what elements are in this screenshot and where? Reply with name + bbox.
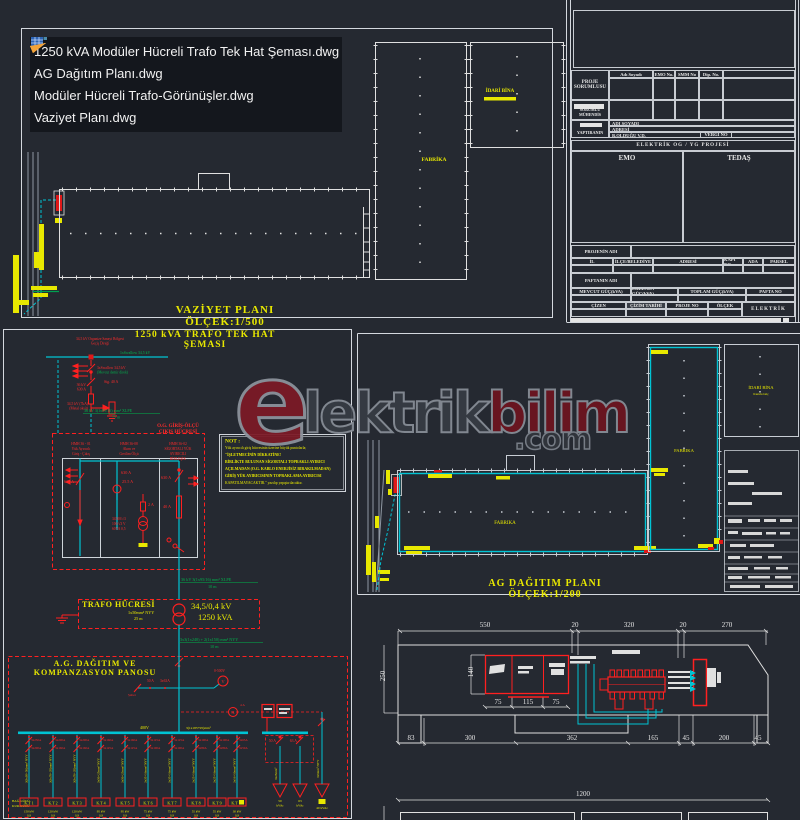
svg-text:630 A: 630 A xyxy=(77,388,86,392)
og-cell-block: O.G. GİRİŞ-ÖLÇÜ ÇIKIŞ HÜCRESİ HMH 36 - 0… xyxy=(53,423,205,570)
fabrika-label: FABRİKA xyxy=(412,158,456,164)
tb-h-empty xyxy=(723,70,795,78)
svg-text:50 A: 50 A xyxy=(147,679,154,683)
dims-outline xyxy=(398,645,768,743)
dim-lower-1200: 1200 xyxy=(563,790,603,798)
tb-scrollbar-end[interactable] xyxy=(783,318,789,322)
tb-emo-box: EMO xyxy=(571,151,683,243)
svg-text:630 A: 630 A xyxy=(64,479,74,484)
svg-text:3x200A: 3x200A xyxy=(55,738,66,742)
svg-text:3x35+16mm² NYY: 3x35+16mm² NYY xyxy=(168,757,172,783)
svg-text:3x50+25mm² NYY: 3x50+25mm² NYY xyxy=(97,757,101,783)
tb-scrollbar-track[interactable] xyxy=(571,318,781,322)
agplan-boards xyxy=(404,470,656,554)
tb-c1 xyxy=(609,78,653,100)
agplan-title: AG DAĞITIM PLANI ÖLÇEK:1/200 xyxy=(455,579,635,600)
svg-text:3x125A: 3x125A xyxy=(127,746,138,750)
tb-tedas-label: TEDAŞ xyxy=(684,154,794,162)
svg-text:3x100A: 3x100A xyxy=(174,746,185,750)
svg-text:Yük ayırıcılı giriş hücresinin: Yük ayırıcılı giriş hücresinin üzerine b… xyxy=(225,446,306,450)
dim-bot-45a: 45 xyxy=(676,734,696,742)
dim-bot-300: 300 xyxy=(455,734,485,742)
svg-text:K.T 3: K.T 3 xyxy=(72,801,81,806)
tb-band-title: ELEKTRİK OG / YG PROJESİ xyxy=(571,140,795,151)
svg-text:HMH 36-08: HMH 36-08 xyxy=(120,442,138,446)
tb-c23 xyxy=(571,309,626,318)
svg-text:75 m: 75 m xyxy=(112,415,121,420)
dim-bot-45b: 45 xyxy=(748,734,768,742)
svg-text:K.T 2: K.T 2 xyxy=(48,801,57,806)
agplan-idari xyxy=(725,345,799,437)
file-name: Vaziyet Planı.dwg xyxy=(34,110,136,125)
tb-c19 xyxy=(571,295,631,303)
tb-il: İL xyxy=(571,258,613,265)
vaziyet-factory-building xyxy=(60,174,370,278)
svg-text:50 A: 50 A xyxy=(269,739,277,743)
tb-c2 xyxy=(653,78,675,100)
svg-text:3(3x70+35)mm² NYY: 3(3x70+35)mm² NYY xyxy=(73,754,77,783)
dim-bot-83: 83 xyxy=(399,734,423,742)
svg-text:V: V xyxy=(221,679,225,684)
trafo-kv-label: 34,5/0,4 kV xyxy=(191,602,231,611)
tb-tedas-box: TEDAŞ xyxy=(683,151,795,243)
tb-c6 xyxy=(609,100,653,120)
tb-parsel: PARSEL xyxy=(763,258,795,265)
tb-c21 xyxy=(678,295,746,303)
cad-viewer-screen: 34,5 kV Organize Sanayi Bölgesi Geçiş Di… xyxy=(0,0,800,820)
svg-text:40 kVAr: 40 kVAr xyxy=(316,806,328,810)
svg-text:Geçiş Direği: Geçiş Direği xyxy=(91,342,109,346)
tb-c16 xyxy=(743,265,763,273)
svg-text:3x250A: 3x250A xyxy=(31,738,42,742)
tb-c11 xyxy=(631,245,795,258)
dim-left-250: 250 xyxy=(379,663,387,689)
svg-text:GİRİŞ YÜK AYIRICISININ TOPRAKL: GİRİŞ YÜK AYIRICISININ TOPRAKLAMA AYIRIC… xyxy=(225,473,322,478)
tekhat-title: 1250 kVA TRAFO TEK HAT ŞEMASI xyxy=(120,331,290,351)
svg-text:K.T 6: K.T 6 xyxy=(143,801,152,806)
tb-sorumlu: SORUMLU MÜHENDİS xyxy=(571,100,609,120)
tb-elektrik: ELEKTRİK xyxy=(742,302,795,317)
vaziyet-title: VAZİYET PLANI ÖLÇEK:1/500 xyxy=(140,305,310,328)
svg-text:34500/√3: 34500/√3 xyxy=(112,517,126,521)
svg-text:K.T 1: K.T 1 xyxy=(24,801,33,806)
svg-text:BİRLİKTE BULUNAN SİGORTALI TOP: BİRLİKTE BULUNAN SİGORTALI TOPRAKLI AYIR… xyxy=(225,459,325,464)
file-name: AG Dağıtım Planı.dwg xyxy=(34,66,163,81)
tb-c7 xyxy=(653,100,675,120)
svg-text:1x50mm² NYY: 1x50mm² NYY xyxy=(128,610,154,615)
svg-text:60VA 0,5: 60VA 0,5 xyxy=(112,527,126,532)
tb-proje-sorumlusu: PROJE SORUMLUSU xyxy=(571,70,609,100)
svg-text:3x80A: 3x80A xyxy=(219,746,228,750)
svg-text:SİGORTALI YÜK: SİGORTALI YÜK xyxy=(164,446,191,451)
svg-text:KAPATILMAYACAKTIR." yazılıp ya: KAPATILMAYACAKTIR." yazılıp yapıştırılac… xyxy=(225,481,303,485)
svg-text:63: 63 xyxy=(298,799,302,803)
tb-vergi: VERGİ NO xyxy=(700,132,732,139)
feeder-group: 3x250A3x200A3(3x95+50)mm² NYYK.T 1150 kW… xyxy=(20,732,248,819)
svg-text:630 A: 630 A xyxy=(161,475,171,480)
svg-text:Şalter: Şalter xyxy=(128,693,137,697)
tb-c26 xyxy=(708,309,742,318)
dim-cell-75a: 75 xyxy=(486,698,510,706)
svg-text:Giriş - Çıkış: Giriş - Çıkış xyxy=(72,452,90,456)
not-box: NOT : Yük ayırıcılı giriş hücresinin üze… xyxy=(220,435,346,492)
tb-projenin-adi: PROJENİN ADI xyxy=(571,245,631,258)
svg-text:3(3x95+50)mm² NYY: 3(3x95+50)mm² NYY xyxy=(25,754,29,783)
tb-c14 xyxy=(653,265,723,273)
svg-text:36 kV 3(1x95/16) mm² XLPE: 36 kV 3(1x95/16) mm² XLPE xyxy=(84,408,133,413)
tb-drawing-area xyxy=(573,10,795,68)
svg-text:3x160A: 3x160A xyxy=(103,738,114,742)
svg-text:40 A: 40 A xyxy=(163,504,171,509)
svg-text:K.T 4: K.T 4 xyxy=(96,801,105,806)
tb-c13 xyxy=(613,265,653,273)
svg-text:K.T 7: K.T 7 xyxy=(167,801,176,806)
tb-h-smm: SMM No xyxy=(675,70,699,78)
svg-text:400V: 400V xyxy=(140,725,149,730)
dim-bot-200: 200 xyxy=(708,734,740,742)
tb-c24 xyxy=(626,309,666,318)
svg-text:50: 50 xyxy=(278,799,282,803)
svg-text:K.T 5: K.T 5 xyxy=(120,801,129,806)
title-block: PROJE SORUMLUSU Adı Soyadı EMO No. SMM N… xyxy=(566,0,800,324)
svg-text:3x35+16mm² NYY: 3x35+16mm² NYY xyxy=(144,757,148,783)
svg-text:3x160A: 3x160A xyxy=(79,746,90,750)
svg-text:Sig. 40 A: Sig. 40 A xyxy=(104,380,118,384)
svg-text:63 A: 63 A xyxy=(290,739,298,743)
tb-c22 xyxy=(746,295,795,303)
svg-text:NOT :: NOT : xyxy=(225,439,240,445)
tb-ilce: İLÇE/BELEDİYE xyxy=(613,258,653,265)
svg-text:3x25+16mm² NYY: 3x25+16mm² NYY xyxy=(213,757,217,783)
tb-c25 xyxy=(666,309,708,318)
dim-top-270: 270 xyxy=(710,621,744,629)
svg-text:3x100A: 3x100A xyxy=(198,738,209,742)
dim-bot-362: 362 xyxy=(557,734,587,742)
svg-text:3x50+25mm² NYY: 3x50+25mm² NYY xyxy=(121,757,125,783)
svg-text:A: A xyxy=(231,710,235,715)
ag-panel: 50 A 3x63A Şalter V 0-500V A 4 A 400V 3(… xyxy=(9,656,348,819)
svg-text:AYIRICILI: AYIRICILI xyxy=(170,452,187,456)
svg-text:3x200A: 3x200A xyxy=(31,746,42,750)
tb-adresi: ADRESİ xyxy=(653,258,723,265)
svg-text:3x25mm²: 3x25mm² xyxy=(274,768,278,780)
agplan-minititleblock xyxy=(714,451,799,592)
svg-text:3x100A: 3x100A xyxy=(150,746,161,750)
dim-cell-115: 115 xyxy=(513,698,543,706)
file-row[interactable]: 1250 kVA Modüler Hücreli Trafo Tek Hat Ş… xyxy=(34,40,342,62)
file-name: 1250 kVA Modüler Hücreli Trafo Tek Hat Ş… xyxy=(34,44,339,59)
file-row[interactable]: Vaziyet Planı.dwg xyxy=(34,106,342,128)
svg-text:K.T 9: K.T 9 xyxy=(212,801,221,806)
tekhat-chain-labels: 36 kV 630 A Sig. 40 A 34,5 kV (7kA) (Met… xyxy=(67,380,160,420)
tb-h-dip: Dip. No. xyxy=(699,70,723,78)
svg-text:36 kV: 36 kV xyxy=(77,383,87,387)
svg-text:3x125A: 3x125A xyxy=(174,738,185,742)
dim-top-20a: 20 xyxy=(563,621,587,629)
idari-bina-label: İDARİ BİNA xyxy=(477,89,523,94)
svg-text:kVAr: kVAr xyxy=(296,804,304,808)
svg-text:36 kV 3(1x95/16) mm² XLPE: 36 kV 3(1x95/16) mm² XLPE xyxy=(181,577,232,582)
tb-c3 xyxy=(675,78,699,100)
tb-c10 xyxy=(723,100,795,120)
file-row[interactable]: AG Dağıtım Planı.dwg xyxy=(34,62,342,84)
tb-c4 xyxy=(699,78,723,100)
svg-text:HMH 36 - 01: HMH 36 - 01 xyxy=(71,442,91,446)
svg-text:(Mevcut demir direk): (Mevcut demir direk) xyxy=(97,371,129,375)
svg-text:3x125A: 3x125A xyxy=(103,746,114,750)
svg-text:3(3x70+35)mm² NYY: 3(3x70+35)mm² NYY xyxy=(49,754,53,783)
tb-c9 xyxy=(699,100,723,120)
svg-text:Yük Ayırıcılı: Yük Ayırıcılı xyxy=(72,447,91,451)
svg-text:0-500V: 0-500V xyxy=(214,669,225,673)
tb-c18 xyxy=(631,273,795,288)
svg-text:kVAr: kVAr xyxy=(276,804,284,808)
svg-text:3x160A: 3x160A xyxy=(127,738,138,742)
svg-text:3x16+10mm² NYY: 3x16+10mm² NYY xyxy=(233,757,237,783)
idari-bina-underline xyxy=(484,97,516,101)
svg-text:"İŞLETMECİNİN DİKKATİNE!: "İŞLETMECİNİN DİKKATİNE! xyxy=(225,452,281,457)
svg-text:ÇIKIŞ HÜCRESİ: ÇIKIŞ HÜCRESİ xyxy=(159,429,197,435)
svg-text:3x50A: 3x50A xyxy=(239,746,248,750)
ag-panel-title-2: KOMPANZASYON PANOSU xyxy=(24,669,166,677)
svg-text:İDARİ BİNA: İDARİ BİNA xyxy=(748,385,774,390)
dims-lower-boxes xyxy=(401,813,768,820)
tb-emo-label: EMO xyxy=(572,154,682,162)
svg-text:3x63A: 3x63A xyxy=(239,738,248,742)
dim-top-320: 320 xyxy=(613,621,645,629)
svg-text:3x125A: 3x125A xyxy=(150,738,161,742)
tb-c5 xyxy=(723,78,795,100)
svg-text:Kurulu Güç: Kurulu Güç xyxy=(753,392,769,396)
dim-top-550: 550 xyxy=(455,621,515,629)
tb-c17 xyxy=(763,265,795,273)
dims-cells xyxy=(486,656,569,698)
tb-ada: ADA xyxy=(743,258,763,265)
tb-h-adi: Adı Soyadı xyxy=(609,70,653,78)
dim-bot-165: 165 xyxy=(638,734,668,742)
svg-text:3(1x185+95)mm²: 3(1x185+95)mm² xyxy=(186,726,211,730)
trafo-kva-label: 1250 kVA xyxy=(198,613,233,622)
tb-c20 xyxy=(631,295,678,303)
svg-text:3x63A: 3x63A xyxy=(160,679,170,683)
svg-text:AÇILMADAN (O.G. KABLO ENERJİSİ: AÇILMADAN (O.G. KABLO ENERJİSİZ BIRAKILM… xyxy=(225,466,331,471)
svg-text:FABRIKA: FABRIKA xyxy=(674,448,695,453)
svg-text:Akım ve: Akım ve xyxy=(123,447,136,451)
svg-text:25.5 A: 25.5 A xyxy=(122,479,133,484)
svg-text:3x200A: 3x200A xyxy=(79,738,90,742)
svg-text:3x80A: 3x80A xyxy=(198,746,207,750)
tb-h-emo: EMO No. xyxy=(653,70,675,78)
svg-text:630 A: 630 A xyxy=(121,470,131,475)
svg-text:K.T 8: K.T 8 xyxy=(191,801,200,806)
tb-c8 xyxy=(675,100,699,120)
svg-text:10 m: 10 m xyxy=(210,644,219,649)
svg-text:BİRLEŞİK: BİRLEŞİK xyxy=(170,456,187,461)
svg-text:10 m: 10 m xyxy=(208,584,217,589)
vaziyet-idari-bina xyxy=(471,43,564,148)
svg-text:3x6mm² NYY: 3x6mm² NYY xyxy=(316,759,320,778)
svg-text:1xSwallow 34,5 kV: 1xSwallow 34,5 kV xyxy=(120,351,151,356)
file-list: 1250 kVA Modüler Hücreli Trafo Tek Hat Ş… xyxy=(30,37,342,132)
svg-text:FABRIKA: FABRIKA xyxy=(494,521,516,526)
svg-text:3x3(1x240) + 2(1x150) mm² NYY: 3x3(1x240) + 2(1x150) mm² NYY xyxy=(180,637,238,642)
dim-top-20b: 20 xyxy=(671,621,695,629)
tb-kapi: KAPI NO xyxy=(723,258,743,265)
svg-text:100/√3 V: 100/√3 V xyxy=(112,522,126,526)
svg-text:4 A: 4 A xyxy=(240,703,245,707)
dim-cell-75b: 75 xyxy=(544,698,568,706)
file-name: Modüler Hücreli Trafo-Görünüşler.dwg xyxy=(34,88,254,103)
svg-text:HMH 36-02: HMH 36-02 xyxy=(169,442,187,446)
file-row[interactable]: Modüler Hücreli Trafo-Görünüşler.dwg xyxy=(34,84,342,106)
svg-text:Gerilim Ölçü: Gerilim Ölçü xyxy=(119,451,138,456)
svg-text:25 m: 25 m xyxy=(134,616,143,621)
svg-text:3x100A: 3x100A xyxy=(219,738,230,742)
tb-paftanin-adi: PAFTANIN ADI xyxy=(571,273,631,288)
tb-c15 xyxy=(723,265,743,273)
svg-text:3x25+16mm² NYY: 3x25+16mm² NYY xyxy=(192,757,196,783)
svg-text:O.G. GİRİŞ-ÖLÇÜ: O.G. GİRİŞ-ÖLÇÜ xyxy=(157,423,199,429)
dwg-file-icon xyxy=(30,37,47,53)
dim-left-140: 140 xyxy=(467,659,475,685)
svg-text:2 A: 2 A xyxy=(148,502,154,507)
tb-c12 xyxy=(571,265,613,273)
svg-text:3x160A: 3x160A xyxy=(55,746,66,750)
trafo-hucresi-label: TRAFO HÜCRESİ xyxy=(82,601,155,609)
